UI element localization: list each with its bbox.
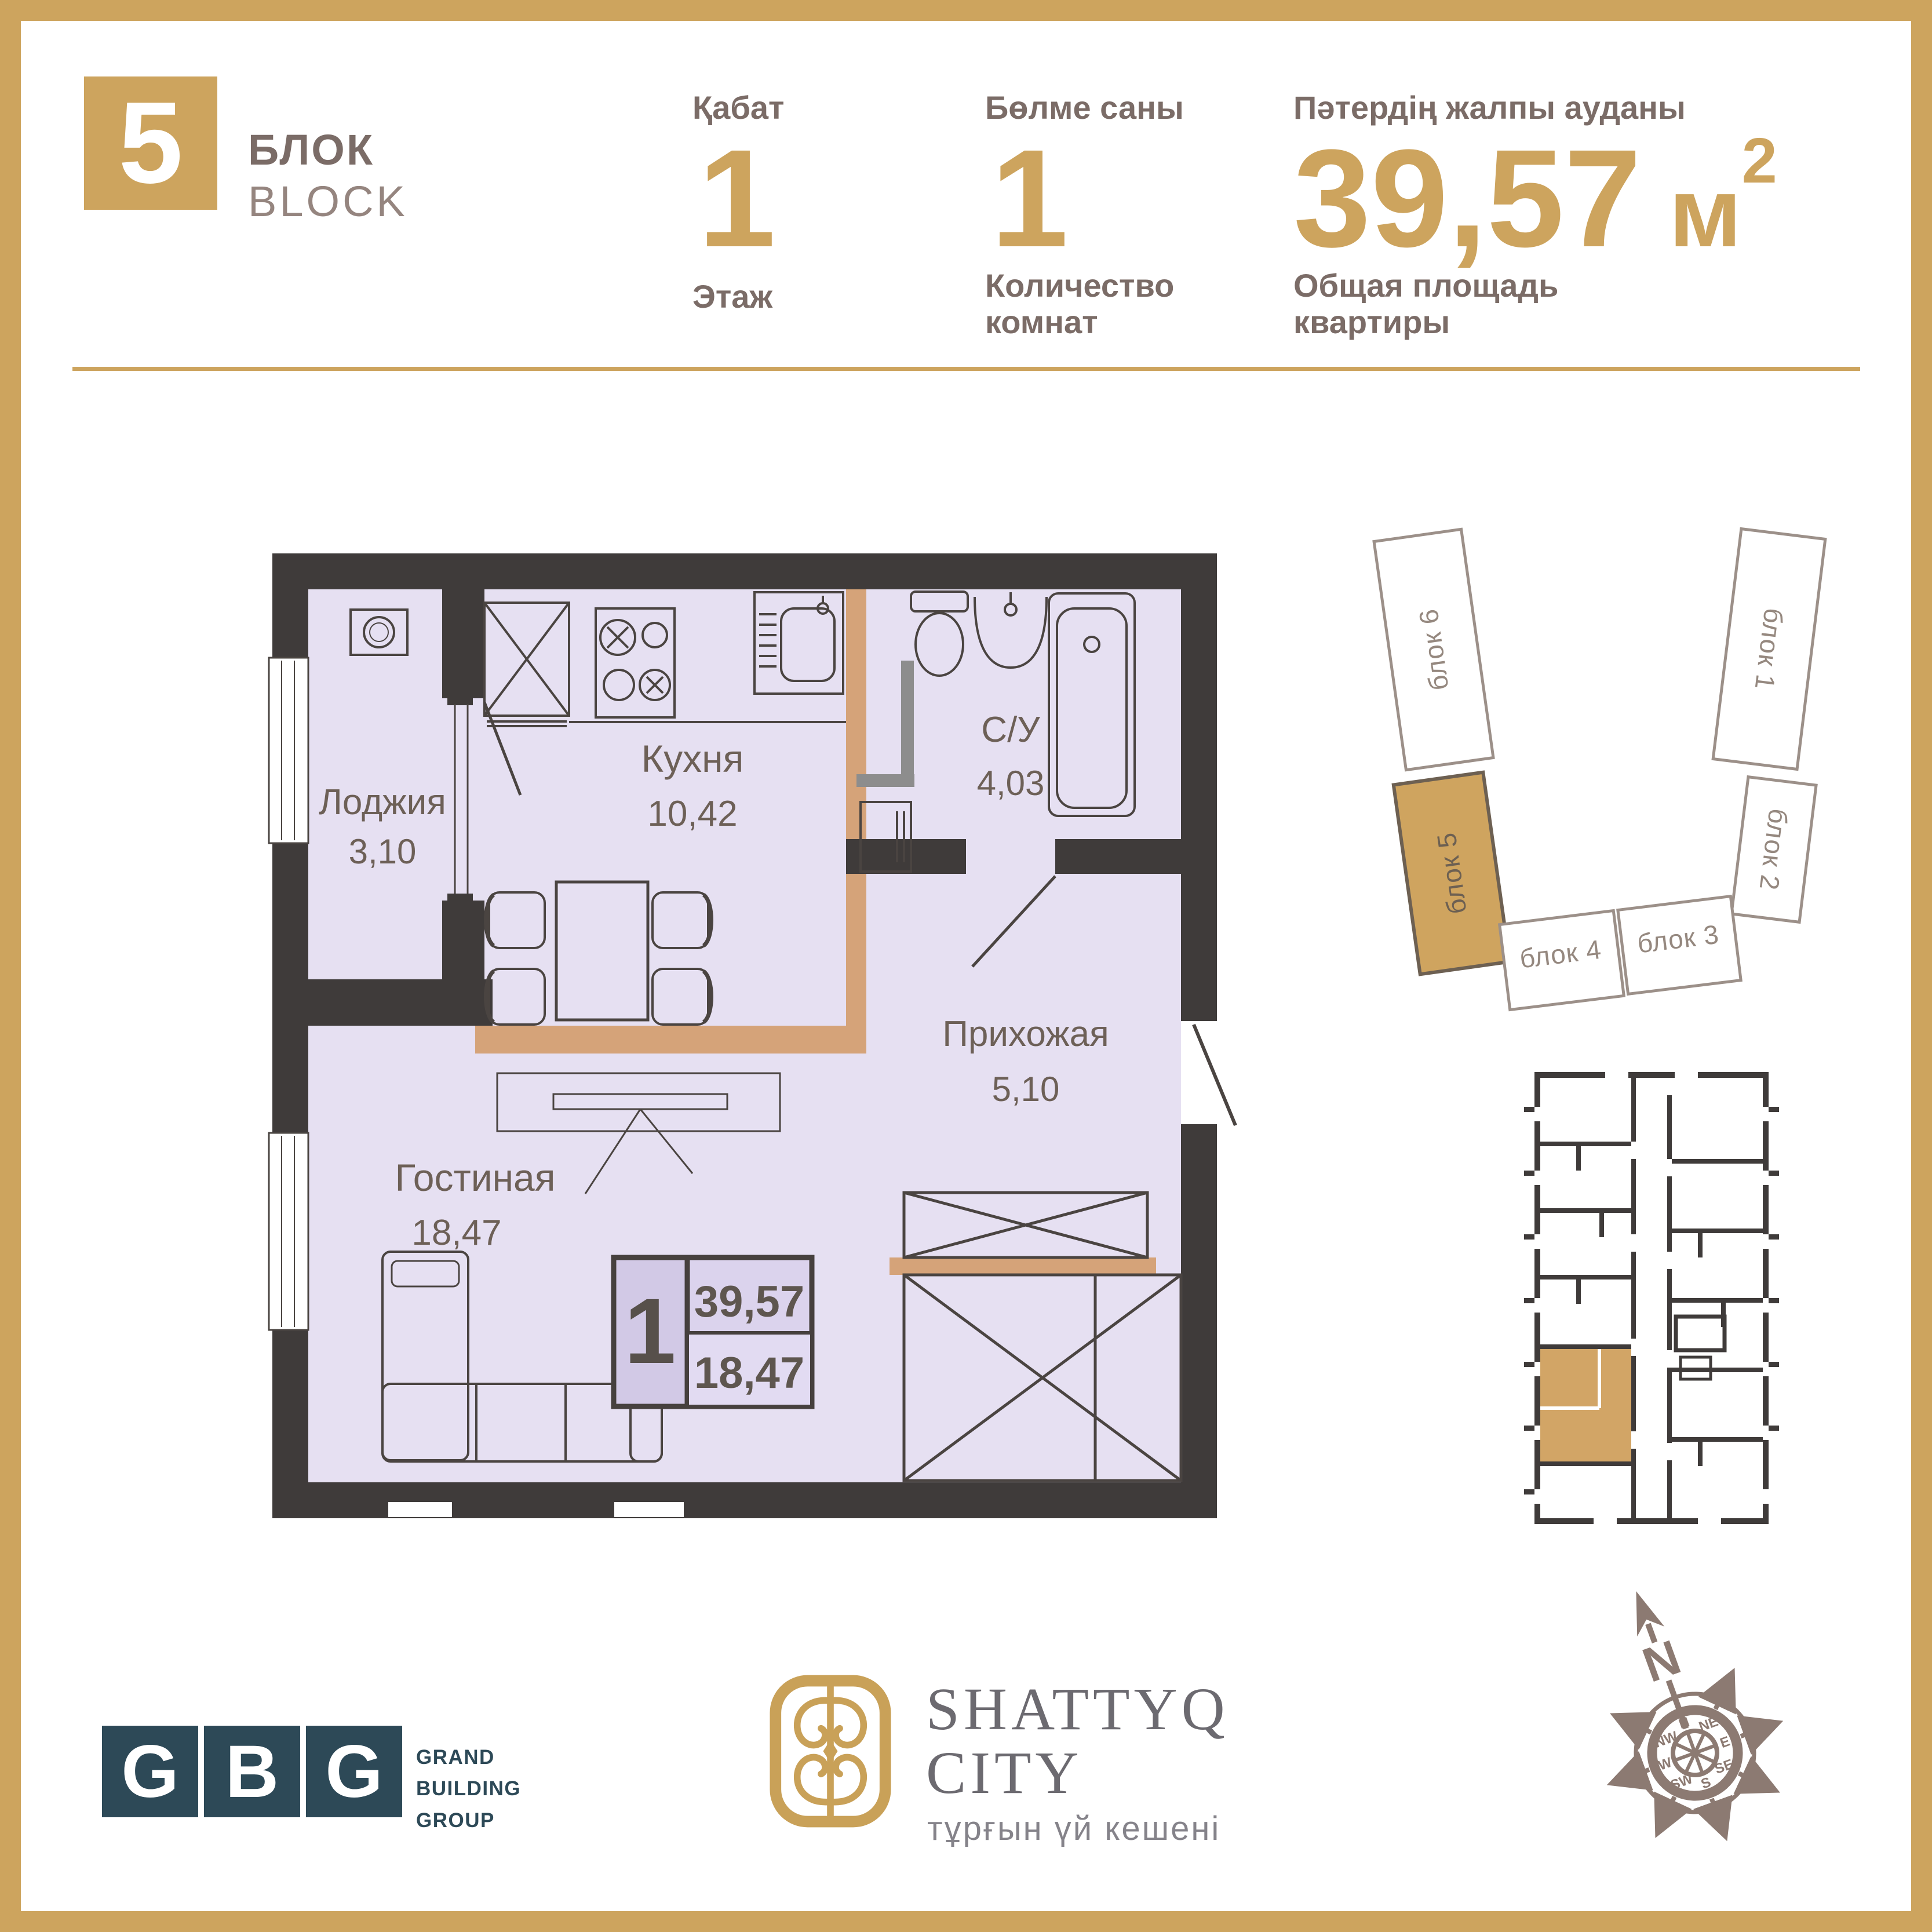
- badge-living-area: 18,47: [694, 1348, 804, 1398]
- compass-point: N: [1677, 1714, 1692, 1732]
- apartment-area-badge: 1 39,57 18,47: [614, 1257, 812, 1406]
- block-number: 5: [118, 85, 183, 201]
- dining-table-icon: [556, 882, 648, 1020]
- bottom-wall-notch: [614, 1502, 684, 1517]
- room-name-hallway: Прихожая: [942, 1014, 1109, 1054]
- area-unit: м: [1669, 158, 1742, 268]
- area-sup: 2: [1742, 125, 1777, 196]
- area-label-ru: Общая площадь квартиры: [1293, 268, 1558, 340]
- room-name-loggia: Лоджия: [319, 782, 446, 822]
- compass-north-label: N: [1636, 1630, 1687, 1693]
- floor-label-ru: Этаж: [692, 280, 772, 313]
- room-name-living: Гостиная: [395, 1156, 555, 1199]
- block-number-badge: 5: [84, 76, 217, 210]
- site-plan: блок 6 блок 1 блок 5 блок 2 блок 4 блок …: [1321, 493, 1843, 1043]
- floor-mini-plan: [1489, 1060, 1814, 1536]
- shattyq-title-line2: CITY: [926, 1743, 1083, 1803]
- badge-total-area: 39,57: [694, 1277, 804, 1326]
- rooms-label-ru: Количество комнат: [985, 268, 1174, 340]
- gbg-letter-square: G: [306, 1726, 402, 1817]
- block-label-kz: БЛОК: [248, 129, 374, 172]
- bath-wall: [1055, 839, 1181, 874]
- room-name-kitchen: Кухня: [641, 737, 744, 780]
- block-label-en: BLOCK: [248, 180, 408, 223]
- area-value-line: 39,57 м2: [1293, 129, 1777, 268]
- shattyq-title-line1: SHATTYQ: [926, 1679, 1229, 1740]
- floor-value: 1: [698, 129, 775, 268]
- room-area-bathroom: 4,03: [977, 764, 1045, 803]
- compass-rose-icon: N N NE E SE S SW W NW: [1565, 1553, 1825, 1878]
- rooms-value: 1: [991, 129, 1068, 268]
- area-label-kz: Пәтердің жалпы ауданы: [1293, 92, 1686, 124]
- apartment-floor-plan: Лоджия 3,10 Кухня 10,42 С/У 4,03 Прихожа…: [243, 522, 1240, 1536]
- shattyq-ornament-icon: [764, 1674, 897, 1829]
- header-separator: [72, 367, 1860, 371]
- room-area-loggia: 3,10: [349, 832, 417, 871]
- rooms-label-kz: Бөлме саны: [985, 92, 1184, 124]
- room-name-bathroom: С/У: [981, 710, 1040, 750]
- gbg-caption: GRAND BUILDING GROUP: [416, 1742, 521, 1836]
- room-area-kitchen: 10,42: [647, 794, 737, 834]
- badge-rooms: 1: [625, 1279, 676, 1383]
- compass-point: S: [1699, 1774, 1713, 1792]
- living-window-icon: [269, 1133, 308, 1330]
- mini-plan-highlighted-unit: [1540, 1349, 1631, 1461]
- room-area-hallway: 5,10: [992, 1070, 1060, 1109]
- bottom-wall-notch: [388, 1502, 452, 1517]
- area-value: 39,57: [1293, 121, 1642, 276]
- shattyq-subtitle: тұрғын үй кешені: [927, 1809, 1220, 1848]
- loggia-bottom-wall: [279, 979, 493, 1026]
- gbg-letter-square: G: [102, 1726, 198, 1817]
- gbg-logo: G B G GRAND BUILDING GROUP: [102, 1726, 521, 1836]
- loggia-window-icon: [269, 658, 308, 843]
- floor-label-kz: Қабат: [692, 92, 784, 124]
- room-area-living: 18,47: [411, 1213, 501, 1253]
- bath-wall: [846, 839, 966, 874]
- gbg-letter-square: B: [204, 1726, 300, 1817]
